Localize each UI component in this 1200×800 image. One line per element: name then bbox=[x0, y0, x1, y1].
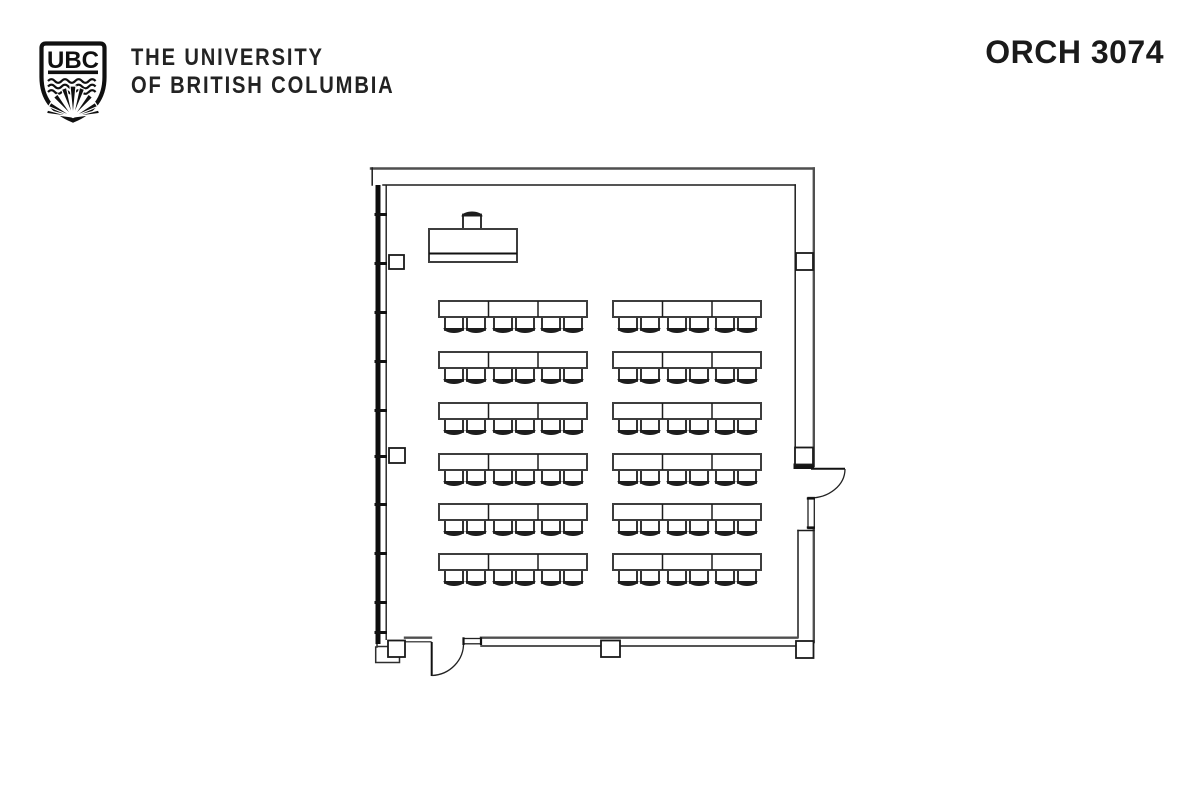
chair-back-icon bbox=[444, 328, 465, 333]
chair-back-icon bbox=[493, 379, 514, 384]
chair-back-icon bbox=[444, 531, 465, 536]
chair bbox=[463, 215, 481, 231]
table-row-block bbox=[439, 454, 587, 486]
table-row-block bbox=[439, 301, 587, 333]
student-table bbox=[439, 454, 587, 470]
chair-back-icon bbox=[737, 531, 758, 536]
student-table bbox=[439, 301, 587, 317]
table-row-block bbox=[613, 403, 761, 435]
chair-back-icon bbox=[618, 430, 639, 435]
chair-back-icon bbox=[515, 531, 536, 536]
chair-back-icon bbox=[618, 481, 639, 486]
chair-back-icon bbox=[689, 581, 710, 586]
student-table bbox=[613, 454, 761, 470]
window-mullion-tick bbox=[375, 455, 388, 458]
chair-back-icon bbox=[466, 379, 487, 384]
table-row-block bbox=[613, 454, 761, 486]
chair-back-icon bbox=[563, 581, 584, 586]
chair-back-icon bbox=[563, 379, 584, 384]
chair-back-icon bbox=[689, 379, 710, 384]
chair-back-icon bbox=[444, 481, 465, 486]
table-row-block bbox=[613, 554, 761, 586]
chair-back-icon bbox=[689, 481, 710, 486]
table-row-block bbox=[439, 554, 587, 586]
instructor-table bbox=[429, 229, 517, 262]
student-seating bbox=[439, 301, 761, 586]
chair-back-icon bbox=[493, 328, 514, 333]
door-sidelight bbox=[807, 498, 815, 529]
chair-back-icon bbox=[618, 328, 639, 333]
chair-back-icon bbox=[640, 531, 661, 536]
chair-back-icon bbox=[737, 481, 758, 486]
chair-back-icon bbox=[466, 430, 487, 435]
structural-column bbox=[796, 641, 814, 658]
student-table bbox=[613, 403, 761, 419]
chair-back-icon bbox=[640, 581, 661, 586]
structural-column bbox=[389, 448, 405, 463]
chair-back-icon bbox=[667, 430, 688, 435]
table-row-block bbox=[613, 301, 761, 333]
door-sidelight bbox=[464, 637, 482, 645]
window-mullion-tick bbox=[375, 503, 388, 506]
structural-column bbox=[795, 448, 813, 465]
chair-back-icon bbox=[541, 581, 562, 586]
chair-back-icon bbox=[493, 531, 514, 536]
table-row-block bbox=[439, 352, 587, 384]
chair-back-icon bbox=[640, 481, 661, 486]
chair-back-icon bbox=[715, 481, 736, 486]
chair-back-icon bbox=[466, 481, 487, 486]
floor-plan-drawing bbox=[0, 0, 1200, 800]
student-table bbox=[613, 301, 761, 317]
student-table bbox=[613, 554, 761, 570]
structural-column bbox=[601, 641, 620, 658]
chair-back-icon bbox=[689, 430, 710, 435]
door-swing-arc bbox=[432, 643, 464, 676]
chair-back-icon bbox=[541, 379, 562, 384]
window-mullion-tick bbox=[375, 213, 388, 216]
window-mullion-tick bbox=[375, 631, 388, 634]
chair-back-icon bbox=[493, 481, 514, 486]
chair-back-icon bbox=[515, 328, 536, 333]
chair-back-icon bbox=[515, 481, 536, 486]
chair-back-icon bbox=[541, 430, 562, 435]
chair-back-icon bbox=[715, 328, 736, 333]
table-row-block bbox=[613, 504, 761, 536]
chair-back-icon bbox=[618, 531, 639, 536]
chair-back-icon bbox=[515, 379, 536, 384]
chair-back-icon bbox=[466, 328, 487, 333]
table-row-block bbox=[439, 403, 587, 435]
student-table bbox=[613, 352, 761, 368]
structural-column bbox=[796, 253, 813, 270]
chair-back-icon bbox=[715, 379, 736, 384]
chair-back-icon bbox=[563, 430, 584, 435]
structural-column bbox=[389, 255, 404, 269]
window-mullion-tick bbox=[375, 409, 388, 412]
chair-back-icon bbox=[618, 379, 639, 384]
chair-back-icon bbox=[618, 581, 639, 586]
chair-back-icon bbox=[737, 581, 758, 586]
chair-back-icon bbox=[715, 531, 736, 536]
table-row-block bbox=[439, 504, 587, 536]
window-mullion-tick bbox=[375, 552, 388, 555]
chair-back-icon bbox=[737, 328, 758, 333]
student-table bbox=[439, 554, 587, 570]
student-table bbox=[439, 352, 587, 368]
student-table bbox=[439, 403, 587, 419]
chair-back-icon bbox=[689, 328, 710, 333]
table-row-block bbox=[613, 352, 761, 384]
chair-back-icon bbox=[667, 328, 688, 333]
entry-door-bottom bbox=[432, 637, 481, 676]
chair-back-icon bbox=[563, 481, 584, 486]
chair-back-icon bbox=[466, 531, 487, 536]
window-mullion-tick bbox=[375, 360, 388, 363]
chair-back-icon bbox=[541, 531, 562, 536]
chair-back-icon bbox=[541, 481, 562, 486]
side-door-right bbox=[794, 464, 846, 529]
chair-back-icon bbox=[515, 581, 536, 586]
chair-back-icon bbox=[563, 328, 584, 333]
chair-back-icon bbox=[667, 581, 688, 586]
chair-back-icon bbox=[640, 328, 661, 333]
chair-back-icon bbox=[493, 581, 514, 586]
door-swing-arc bbox=[809, 469, 845, 498]
chair-back-icon bbox=[515, 430, 536, 435]
chair-back-icon bbox=[563, 531, 584, 536]
student-table bbox=[439, 504, 587, 520]
chair-back-icon bbox=[667, 531, 688, 536]
floor-plan-page: UBC THE UNIVERSITY OF BRITISH COLUMBI bbox=[0, 0, 1200, 800]
chair-back-icon bbox=[737, 379, 758, 384]
chair-back-icon bbox=[715, 581, 736, 586]
window-mullion-tick bbox=[375, 601, 388, 604]
chair-back-icon bbox=[493, 430, 514, 435]
chair-back-icon bbox=[640, 379, 661, 384]
structural-column bbox=[388, 641, 405, 658]
instructor-station bbox=[429, 212, 517, 263]
chair-back-icon bbox=[466, 581, 487, 586]
window-mullion-tick bbox=[375, 311, 388, 314]
chair-back-icon bbox=[444, 581, 465, 586]
chair-back-icon bbox=[689, 531, 710, 536]
chair-back-icon bbox=[444, 430, 465, 435]
chair-back-icon bbox=[737, 430, 758, 435]
window-wall bbox=[375, 185, 388, 644]
chair-back-icon bbox=[541, 328, 562, 333]
chair-back-icon bbox=[462, 212, 483, 217]
student-table bbox=[613, 504, 761, 520]
chair-back-icon bbox=[667, 379, 688, 384]
chair-back-icon bbox=[640, 430, 661, 435]
chair-back-icon bbox=[667, 481, 688, 486]
chair-back-icon bbox=[715, 430, 736, 435]
window-mullion-tick bbox=[375, 262, 388, 265]
chair-back-icon bbox=[444, 379, 465, 384]
